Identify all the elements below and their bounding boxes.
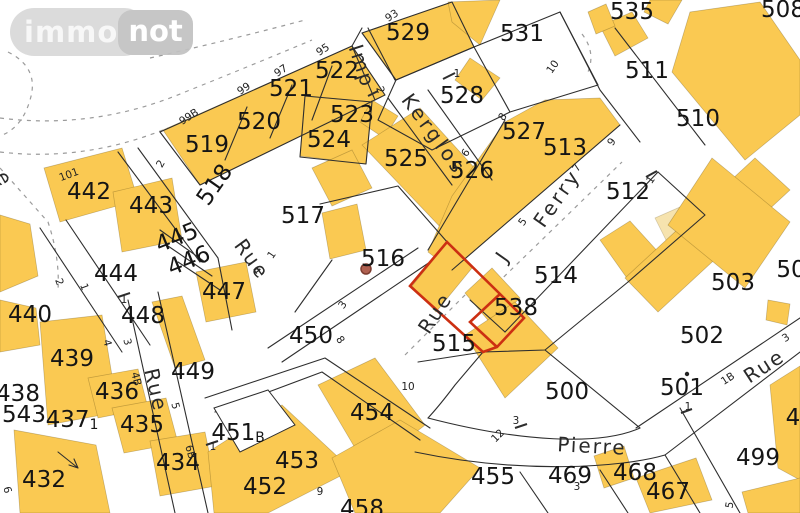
immonot-logo: immo not: [10, 8, 148, 56]
parcel-marker-dot: [361, 264, 371, 274]
building-shapes: [0, 0, 800, 513]
map-graphics: [0, 0, 800, 513]
boundary-point-dot: [685, 372, 689, 376]
logo-immo-text: immo: [10, 15, 118, 49]
logo-not-text: not: [118, 10, 192, 55]
cadastral-map: 4324344354364371438439440442443444445446…: [0, 0, 800, 513]
